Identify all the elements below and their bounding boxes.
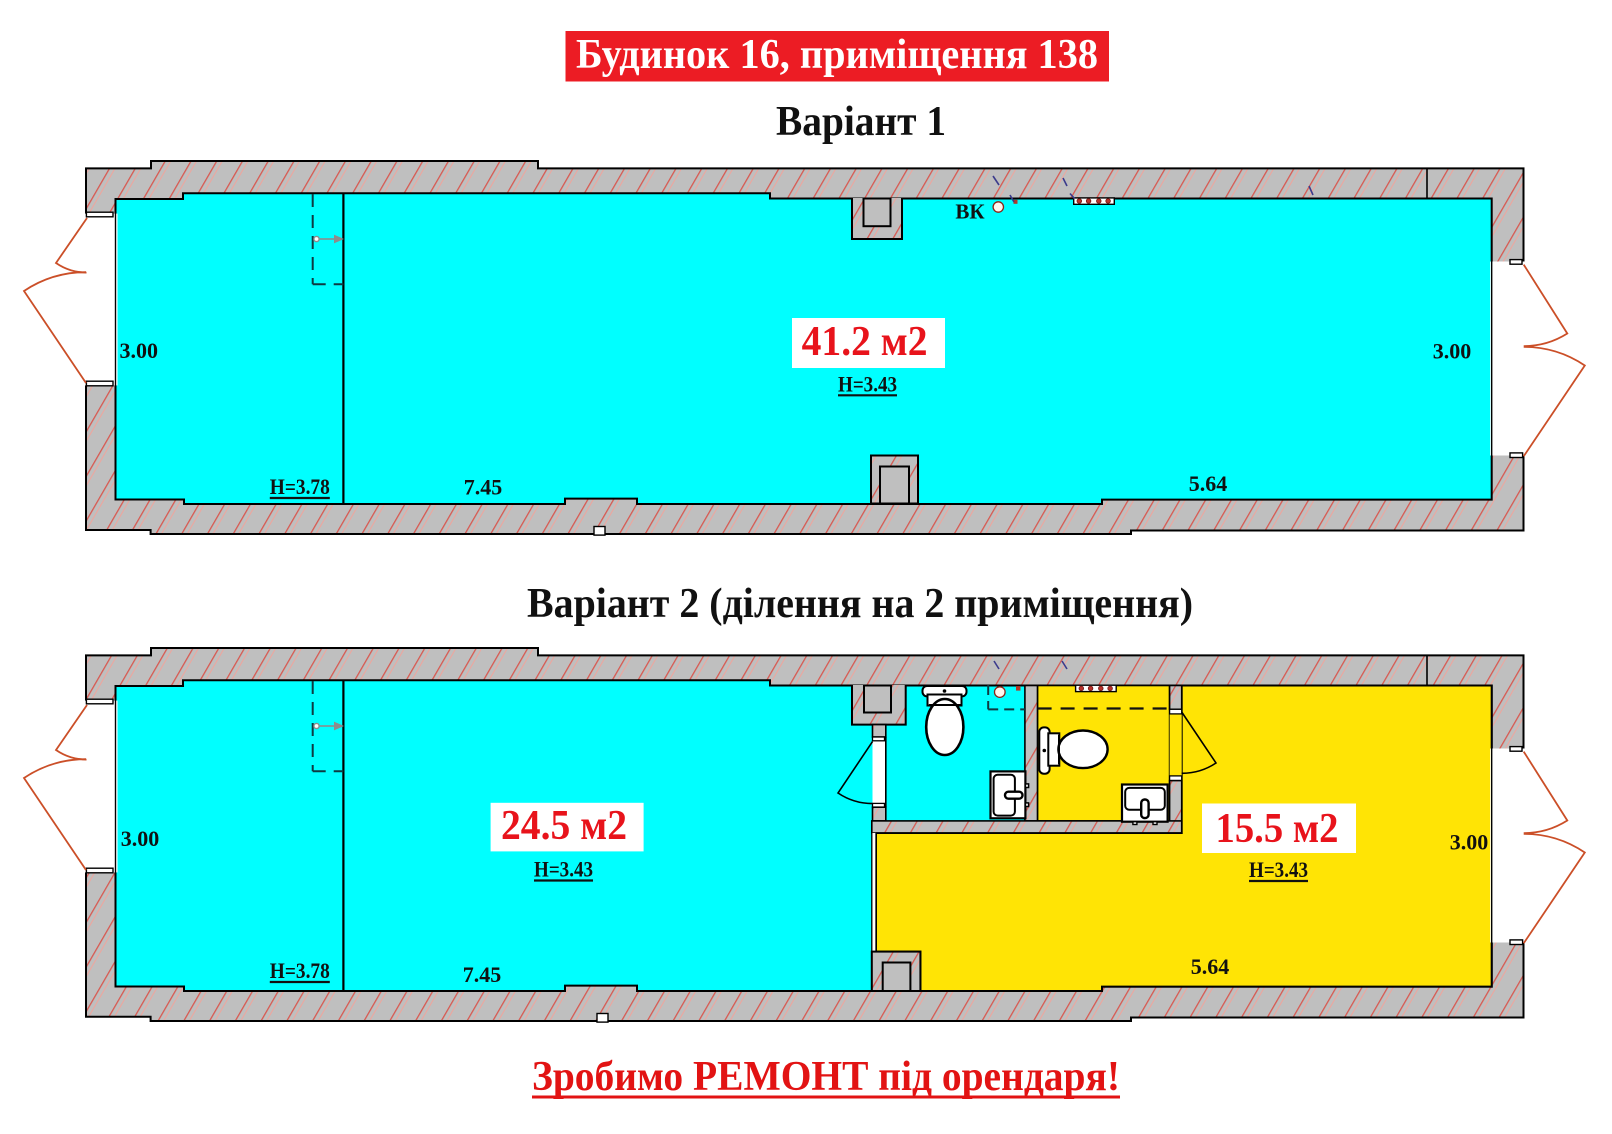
svg-text:5.64: 5.64 — [1191, 954, 1230, 979]
svg-text:Н=3.78: Н=3.78 — [270, 958, 330, 983]
svg-text:Варіант 1: Варіант 1 — [776, 99, 946, 145]
svg-text:15.5 м2: 15.5 м2 — [1216, 806, 1339, 852]
svg-text:3.00: 3.00 — [1433, 339, 1472, 364]
svg-text:3.00: 3.00 — [121, 826, 160, 851]
svg-text:Зробимо РЕМОНТ під орендаря!: Зробимо РЕМОНТ під орендаря! — [532, 1054, 1120, 1100]
svg-text:ВК: ВК — [955, 199, 985, 223]
svg-text:Н=3.78: Н=3.78 — [270, 474, 330, 499]
svg-text:3.00: 3.00 — [119, 338, 158, 363]
svg-text:41.2 м2: 41.2 м2 — [802, 319, 928, 365]
svg-text:3.00: 3.00 — [1450, 830, 1489, 855]
svg-text:Н=3.43: Н=3.43 — [534, 857, 593, 882]
svg-text:Н=3.43: Н=3.43 — [1249, 857, 1308, 882]
svg-text:Будинок 16, приміщення 138: Будинок 16, приміщення 138 — [576, 32, 1098, 78]
svg-text:7.45: 7.45 — [463, 962, 502, 987]
svg-text:Варіант 2 (ділення на 2 приміщ: Варіант 2 (ділення на 2 приміщення) — [527, 581, 1193, 627]
svg-text:5.64: 5.64 — [1189, 471, 1228, 496]
svg-text:Н=3.43: Н=3.43 — [838, 372, 897, 397]
svg-text:24.5 м2: 24.5 м2 — [501, 803, 627, 849]
svg-text:7.45: 7.45 — [464, 475, 503, 500]
